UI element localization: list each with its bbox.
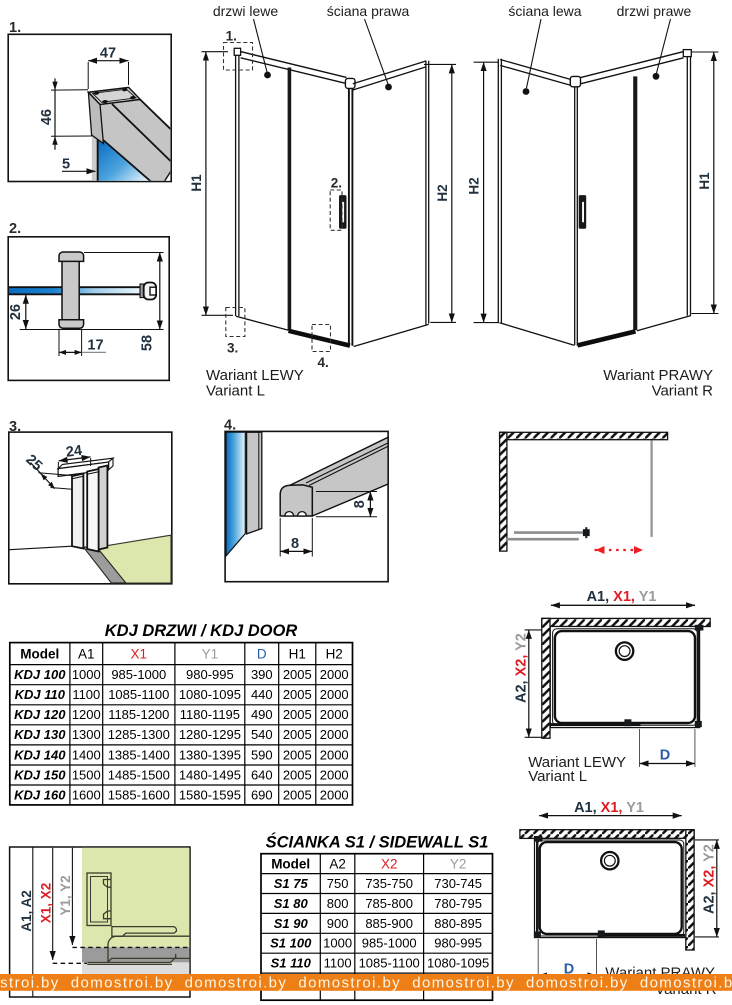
svg-text:1085-1100: 1085-1100 <box>359 956 420 971</box>
svg-text:Wariant PRAWY: Wariant PRAWY <box>603 367 713 384</box>
svg-text:ściana prawa: ściana prawa <box>327 3 410 19</box>
svg-text:KDJ 100: KDJ 100 <box>14 667 66 682</box>
svg-text:5: 5 <box>62 157 70 173</box>
svg-text:H1: H1 <box>189 174 204 192</box>
svg-text:H2: H2 <box>326 647 343 662</box>
svg-text:Variant L: Variant L <box>206 383 265 400</box>
svg-text:H1: H1 <box>289 647 306 662</box>
svg-text:X1: X1 <box>131 647 148 662</box>
svg-text:885-900: 885-900 <box>365 916 413 931</box>
svg-text:domostroi.by domostroi.by do: domostroi.by domostroi.by domostroi.by d… <box>0 975 732 992</box>
svg-text:1000: 1000 <box>72 667 101 682</box>
svg-text:980-995: 980-995 <box>186 667 234 682</box>
svg-text:2000: 2000 <box>320 767 349 782</box>
svg-text:drzwi prawe: drzwi prawe <box>617 3 692 19</box>
svg-text:1100: 1100 <box>324 956 352 971</box>
svg-text:1000: 1000 <box>323 936 352 951</box>
svg-text:8: 8 <box>291 536 299 552</box>
svg-text:KDJ 140: KDJ 140 <box>14 747 66 762</box>
svg-text:1500: 1500 <box>72 767 101 782</box>
svg-text:X2: X2 <box>381 857 398 872</box>
svg-text:Model: Model <box>271 857 310 872</box>
svg-text:2005: 2005 <box>283 767 312 782</box>
svg-text:1100: 1100 <box>72 687 100 702</box>
svg-text:1580-1595: 1580-1595 <box>179 788 241 803</box>
svg-text:1080-1095: 1080-1095 <box>427 956 489 971</box>
svg-text:Model: Model <box>20 647 59 662</box>
svg-text:690: 690 <box>251 788 273 803</box>
svg-text:1380-1395: 1380-1395 <box>179 747 241 762</box>
svg-text:Variant L: Variant L <box>528 768 587 785</box>
svg-text:1.: 1. <box>226 29 237 44</box>
svg-text:1385-1400: 1385-1400 <box>108 747 170 762</box>
svg-text:540: 540 <box>251 727 273 742</box>
svg-text:A2, X2, Y2: A2, X2, Y2 <box>702 844 718 914</box>
svg-text:S1 80: S1 80 <box>274 896 309 911</box>
svg-text:Y1: Y1 <box>202 647 219 662</box>
svg-text:2000: 2000 <box>320 788 349 803</box>
svg-text:1185-1200: 1185-1200 <box>108 707 169 722</box>
svg-text:A1, X1, Y1: A1, X1, Y1 <box>587 589 657 605</box>
svg-text:900: 900 <box>327 916 349 931</box>
svg-text:390: 390 <box>251 667 273 682</box>
svg-text:A1, A2: A1, A2 <box>19 890 34 932</box>
svg-text:1180-1195: 1180-1195 <box>180 707 240 722</box>
svg-text:26: 26 <box>8 304 24 320</box>
svg-text:KDJ DRZWI / KDJ DOOR: KDJ DRZWI / KDJ DOOR <box>105 622 298 640</box>
svg-text:A1: A1 <box>78 647 95 662</box>
svg-text:1300: 1300 <box>72 727 101 742</box>
svg-text:2000: 2000 <box>320 707 349 722</box>
svg-text:2005: 2005 <box>283 667 312 682</box>
svg-text:2000: 2000 <box>320 687 349 702</box>
svg-text:47: 47 <box>100 46 116 62</box>
svg-text:58: 58 <box>140 335 156 351</box>
svg-text:735-750: 735-750 <box>365 876 413 891</box>
svg-text:640: 640 <box>251 767 273 782</box>
svg-text:H2: H2 <box>435 184 450 201</box>
svg-text:D: D <box>257 647 267 662</box>
svg-text:1280-1295: 1280-1295 <box>179 727 241 742</box>
svg-text:D: D <box>660 748 670 764</box>
svg-text:1080-1095: 1080-1095 <box>179 687 241 702</box>
svg-text:1085-1100: 1085-1100 <box>108 687 169 702</box>
svg-text:S1 75: S1 75 <box>274 876 309 891</box>
svg-text:980-995: 980-995 <box>434 936 482 951</box>
svg-text:3.: 3. <box>227 341 238 356</box>
svg-text:4.: 4. <box>318 355 329 370</box>
svg-text:S1 90: S1 90 <box>274 916 309 931</box>
svg-text:ŚCIANKA S1 / SIDEWALL S1: ŚCIANKA S1 / SIDEWALL S1 <box>266 833 489 852</box>
svg-text:Wariant LEWY: Wariant LEWY <box>206 367 304 384</box>
svg-text:Y2: Y2 <box>450 857 467 872</box>
svg-text:985-1000: 985-1000 <box>111 667 166 682</box>
svg-text:1485-1500: 1485-1500 <box>108 767 170 782</box>
svg-text:440: 440 <box>251 687 273 702</box>
svg-text:X1, X2: X1, X2 <box>39 883 54 924</box>
svg-text:KDJ 120: KDJ 120 <box>14 707 66 722</box>
svg-text:S1 100: S1 100 <box>270 936 312 951</box>
svg-text:17: 17 <box>87 338 103 354</box>
svg-text:24: 24 <box>65 443 83 461</box>
svg-text:1285-1300: 1285-1300 <box>108 727 170 742</box>
svg-text:A1, X1, Y1: A1, X1, Y1 <box>574 800 644 816</box>
svg-text:46: 46 <box>39 109 55 125</box>
svg-text:A2: A2 <box>329 857 346 872</box>
svg-text:785-800: 785-800 <box>365 896 413 911</box>
svg-text:8: 8 <box>352 500 368 508</box>
svg-text:drzwi lewe: drzwi lewe <box>213 3 279 19</box>
svg-text:730-745: 730-745 <box>434 876 482 891</box>
svg-text:1200: 1200 <box>72 707 101 722</box>
svg-text:Variant R: Variant R <box>652 383 714 400</box>
svg-text:2005: 2005 <box>283 727 312 742</box>
svg-text:2005: 2005 <box>283 747 312 762</box>
svg-text:1400: 1400 <box>72 747 101 762</box>
svg-text:S1 110: S1 110 <box>271 956 312 971</box>
svg-text:H2: H2 <box>467 177 482 194</box>
svg-text:KDJ 150: KDJ 150 <box>14 767 66 782</box>
svg-text:1600: 1600 <box>72 788 101 803</box>
svg-text:490: 490 <box>251 707 273 722</box>
svg-text:2005: 2005 <box>283 788 312 803</box>
svg-text:KDJ 160: KDJ 160 <box>14 788 66 803</box>
svg-text:2005: 2005 <box>283 687 312 702</box>
svg-text:ściana lewa: ściana lewa <box>508 3 581 19</box>
svg-text:880-895: 880-895 <box>434 916 482 931</box>
svg-text:750: 750 <box>327 876 349 891</box>
svg-text:985-1000: 985-1000 <box>362 936 417 951</box>
svg-text:2000: 2000 <box>320 667 349 682</box>
svg-text:800: 800 <box>327 896 349 911</box>
svg-text:2000: 2000 <box>320 727 349 742</box>
svg-text:2000: 2000 <box>320 747 349 762</box>
svg-text:2.: 2. <box>9 221 21 237</box>
svg-text:780-795: 780-795 <box>434 896 482 911</box>
svg-text:A2, X2, Y2: A2, X2, Y2 <box>514 633 530 703</box>
svg-text:2.: 2. <box>331 176 342 191</box>
svg-text:H1: H1 <box>697 172 712 190</box>
svg-text:1480-1495: 1480-1495 <box>179 767 241 782</box>
svg-text:1585-1600: 1585-1600 <box>108 788 170 803</box>
svg-text:KDJ 110: KDJ 110 <box>15 687 66 702</box>
svg-text:Y1, Y2: Y1, Y2 <box>58 875 73 915</box>
svg-text:2005: 2005 <box>283 707 312 722</box>
svg-text:590: 590 <box>251 747 273 762</box>
svg-text:KDJ 130: KDJ 130 <box>14 727 66 742</box>
